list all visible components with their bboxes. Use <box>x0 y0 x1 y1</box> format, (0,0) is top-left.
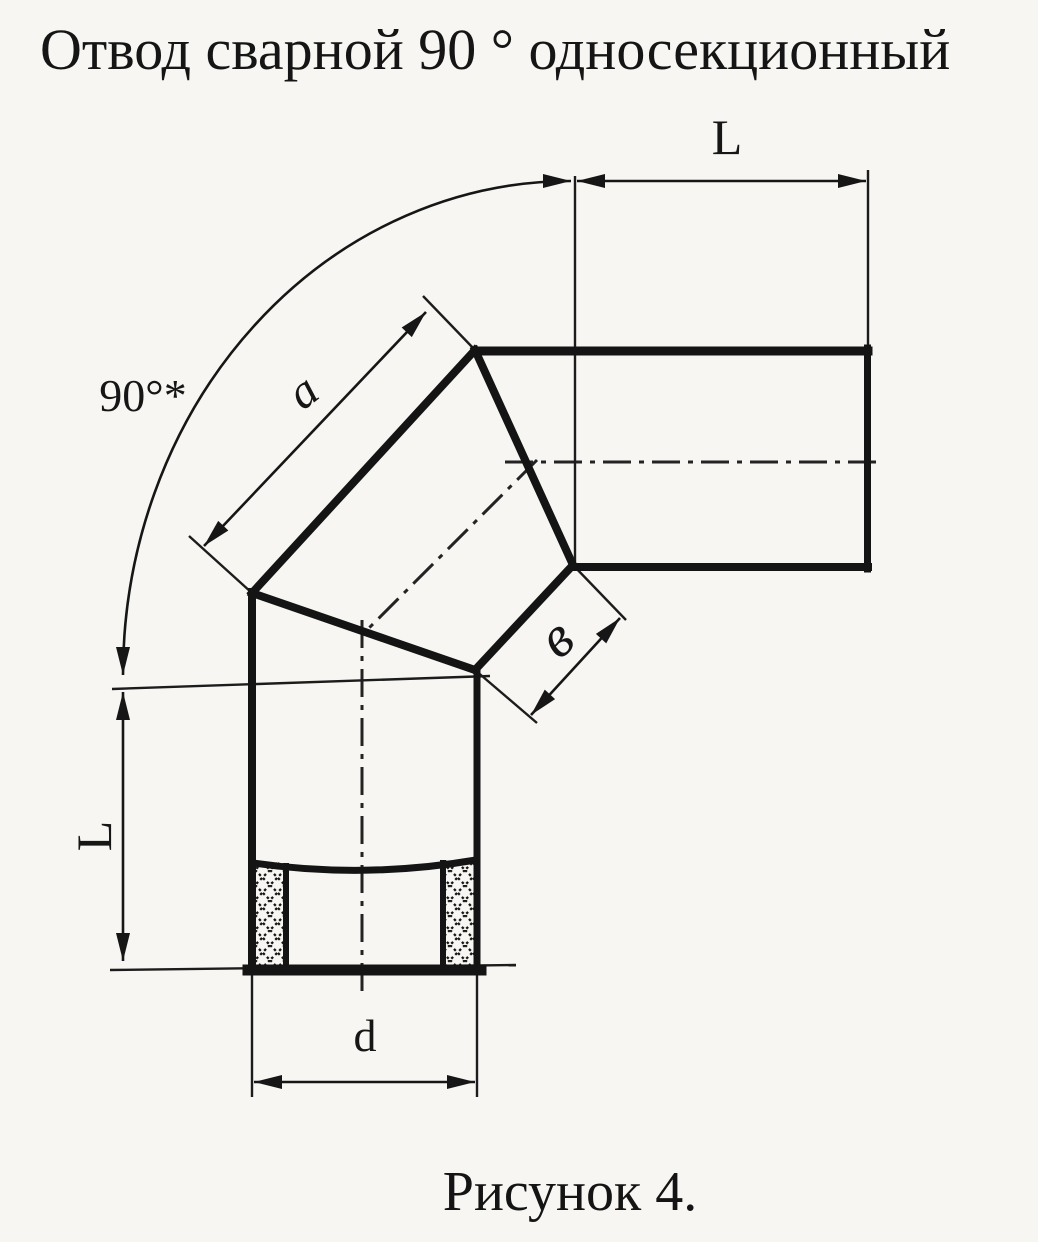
figure-caption: Рисунок 4. <box>443 1160 697 1224</box>
elbow-diagram <box>0 0 1038 1242</box>
dim-label-L-left: L <box>69 821 119 852</box>
pipe-wall-section-right <box>444 860 475 967</box>
section-axis-centerline <box>362 460 537 635</box>
angle-arc-90deg <box>123 181 571 675</box>
ext-line-b-lower <box>475 670 537 723</box>
dim-label-d: d <box>354 1013 377 1059</box>
ext-line-b-upper <box>573 565 626 620</box>
angle-label-90deg: 90°* <box>99 373 186 419</box>
ext-line-a-lower <box>189 536 252 593</box>
pipe-wall-section-left <box>254 862 285 967</box>
dimension-lines <box>123 181 866 1082</box>
upper-weld-seam <box>475 350 573 565</box>
scanned-drawing-page: Отвод сварной 90 ° односекционный <box>0 0 1038 1242</box>
ext-line-inner-vertex-horizontal <box>112 676 490 689</box>
dim-label-L-top: L <box>712 112 743 162</box>
ext-line-a-upper <box>423 296 475 350</box>
centerlines <box>362 460 878 993</box>
extension-lines <box>110 170 868 1097</box>
